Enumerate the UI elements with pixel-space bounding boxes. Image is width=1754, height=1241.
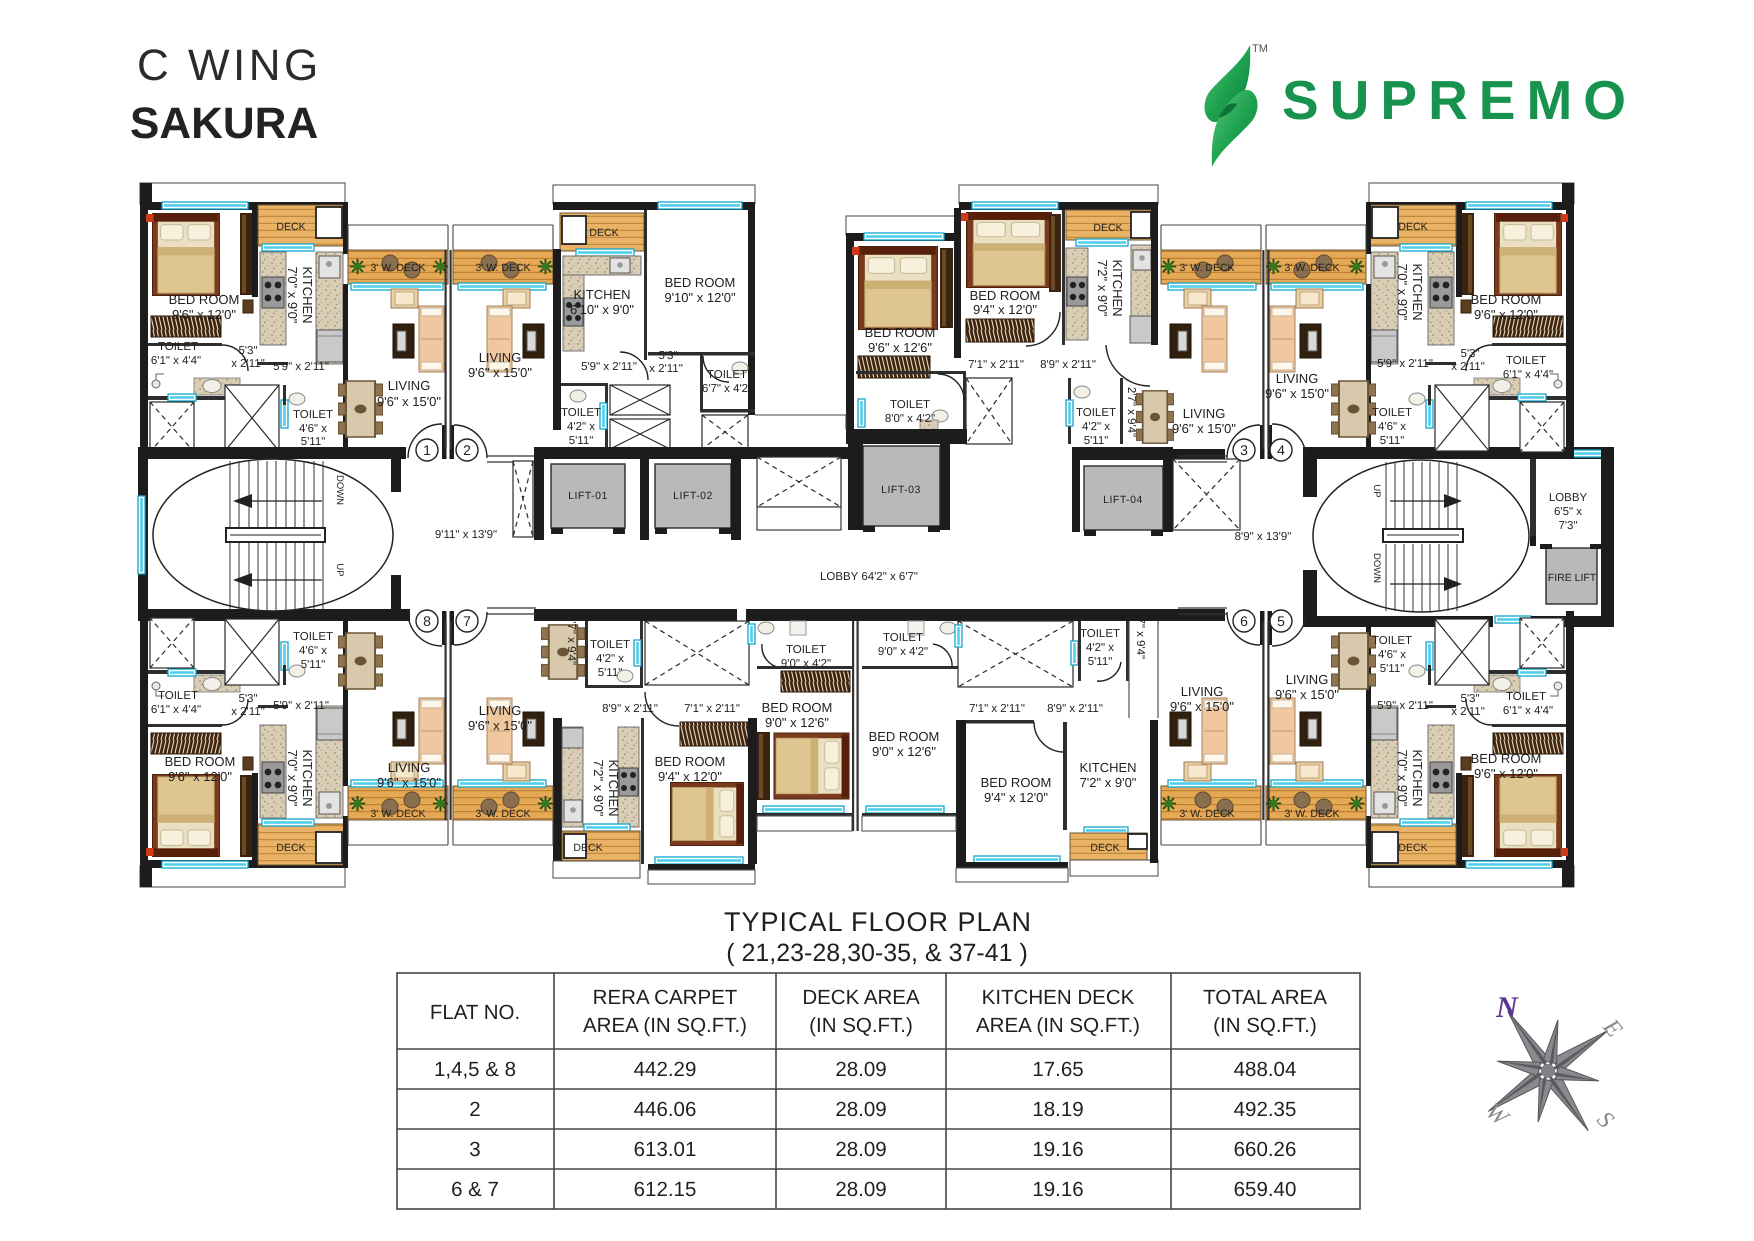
svg-text:RERA CARPET: RERA CARPET <box>593 986 738 1009</box>
svg-text:SUPREMO: SUPREMO <box>1282 69 1637 131</box>
svg-text:LIFT-03: LIFT-03 <box>881 484 921 496</box>
svg-text:5'11": 5'11" <box>301 659 326 671</box>
svg-text:9'6" x 15'0": 9'6" x 15'0" <box>1265 386 1329 401</box>
svg-text:9'6" x 15'0": 9'6" x 15'0" <box>468 365 532 380</box>
svg-text:4'6" x: 4'6" x <box>1378 421 1406 433</box>
svg-text:7'2" x 9'0": 7'2" x 9'0" <box>1095 260 1110 317</box>
svg-text:BED ROOM: BED ROOM <box>165 754 236 769</box>
svg-text:DECK: DECK <box>276 842 305 854</box>
svg-text:BED ROOM: BED ROOM <box>762 700 833 715</box>
svg-text:5'3": 5'3" <box>238 693 257 705</box>
svg-text:7'0" x 9'0": 7'0" x 9'0" <box>285 267 300 324</box>
svg-text:5'11": 5'11" <box>1380 435 1405 447</box>
svg-text:TOILET: TOILET <box>1506 691 1546 703</box>
svg-text:TOILET: TOILET <box>293 631 333 643</box>
svg-text:x 2'11": x 2'11" <box>1451 361 1485 373</box>
svg-text:8'9" x 2'11": 8'9" x 2'11" <box>602 703 658 715</box>
svg-text:2'7" x 9'4": 2'7" x 9'4" <box>1134 609 1146 659</box>
svg-text:DECK: DECK <box>1090 842 1119 854</box>
svg-text:UP: UP <box>1371 484 1382 497</box>
svg-text:442.29: 442.29 <box>634 1058 697 1081</box>
svg-text:x 2'11": x 2'11" <box>231 358 265 370</box>
svg-text:6'10" x 9'0": 6'10" x 9'0" <box>570 302 634 317</box>
svg-text:5'11": 5'11" <box>301 436 326 448</box>
svg-text:28.09: 28.09 <box>835 1138 886 1161</box>
svg-text:660.26: 660.26 <box>1234 1138 1297 1161</box>
svg-text:28.09: 28.09 <box>835 1098 886 1121</box>
svg-text:5'9" x 2'11": 5'9" x 2'11" <box>1377 358 1433 370</box>
svg-text:TOILET: TOILET <box>1506 355 1546 367</box>
svg-text:TOILET: TOILET <box>890 399 930 411</box>
svg-text:9'4" x 12'0": 9'4" x 12'0" <box>984 790 1048 805</box>
svg-text:LIVING: LIVING <box>479 703 522 718</box>
svg-text:DECK: DECK <box>1093 222 1122 234</box>
svg-text:BED ROOM: BED ROOM <box>665 275 736 290</box>
svg-text:KITCHEN: KITCHEN <box>1110 259 1125 316</box>
svg-text:LIFT-04: LIFT-04 <box>1103 494 1143 506</box>
svg-text:(IN SQ.FT.): (IN SQ.FT.) <box>809 1014 913 1037</box>
svg-text:C WING: C WING <box>137 41 322 90</box>
svg-text:DECK: DECK <box>589 227 618 239</box>
svg-text:FLAT NO.: FLAT NO. <box>430 1001 520 1024</box>
svg-text:9'6" x 15'0": 9'6" x 15'0" <box>377 775 441 790</box>
svg-text:TOILET: TOILET <box>1372 635 1412 647</box>
svg-text:7: 7 <box>463 613 471 629</box>
svg-text:TM: TM <box>1252 43 1268 55</box>
svg-text:LIVING: LIVING <box>388 760 431 775</box>
svg-text:6 & 7: 6 & 7 <box>451 1178 499 1201</box>
svg-text:5'9" x 2'11": 5'9" x 2'11" <box>273 700 329 712</box>
svg-text:9'0" x 4'2": 9'0" x 4'2" <box>878 646 928 658</box>
svg-text:7'0" x 9'0": 7'0" x 9'0" <box>285 750 300 807</box>
svg-text:5'11": 5'11" <box>1084 435 1109 447</box>
svg-text:7'0" x 9'0": 7'0" x 9'0" <box>1395 264 1410 321</box>
svg-text:x 2'11": x 2'11" <box>649 363 683 375</box>
svg-text:28.09: 28.09 <box>835 1058 886 1081</box>
svg-text:TYPICAL FLOOR PLAN: TYPICAL FLOOR PLAN <box>724 907 1032 937</box>
svg-text:TOILET: TOILET <box>883 632 923 644</box>
svg-text:5'11": 5'11" <box>569 435 594 447</box>
svg-text:3' W. DECK: 3' W. DECK <box>1179 808 1234 820</box>
svg-text:4'6" x: 4'6" x <box>1378 649 1406 661</box>
svg-text:LIVING: LIVING <box>1276 371 1319 386</box>
svg-text:488.04: 488.04 <box>1234 1058 1297 1081</box>
svg-text:LIVING: LIVING <box>388 378 431 393</box>
svg-text:9'6" x 15'0": 9'6" x 15'0" <box>1275 687 1339 702</box>
svg-text:TOILET: TOILET <box>1080 628 1120 640</box>
svg-text:(IN SQ.FT.): (IN SQ.FT.) <box>1213 1014 1317 1037</box>
svg-text:9'0" x 12'6": 9'0" x 12'6" <box>765 715 829 730</box>
svg-text:BED ROOM: BED ROOM <box>865 325 936 340</box>
svg-text:UP: UP <box>334 563 345 576</box>
svg-text:1: 1 <box>423 442 431 458</box>
svg-text:LIFT-01: LIFT-01 <box>568 490 608 502</box>
svg-text:3' W. DECK: 3' W. DECK <box>1284 262 1339 274</box>
svg-text:TOTAL AREA: TOTAL AREA <box>1203 986 1327 1009</box>
svg-text:5'9" x 2'11": 5'9" x 2'11" <box>273 361 329 373</box>
svg-text:8: 8 <box>423 613 431 629</box>
svg-text:BED ROOM: BED ROOM <box>981 775 1052 790</box>
svg-text:LOBBY: LOBBY <box>1549 492 1588 504</box>
svg-text:7'1" x 2'11": 7'1" x 2'11" <box>968 359 1024 371</box>
svg-text:9'6" x 12'6": 9'6" x 12'6" <box>868 340 932 355</box>
svg-text:7'2" x 9'0": 7'2" x 9'0" <box>1080 775 1137 790</box>
svg-text:9'0" x 12'6": 9'0" x 12'6" <box>872 744 936 759</box>
svg-text:19.16: 19.16 <box>1032 1178 1083 1201</box>
svg-text:KITCHEN DECK: KITCHEN DECK <box>982 986 1135 1009</box>
svg-text:3' W. DECK: 3' W. DECK <box>475 808 530 820</box>
svg-text:18.19: 18.19 <box>1032 1098 1083 1121</box>
svg-text:3' W. DECK: 3' W. DECK <box>475 262 530 274</box>
svg-text:7'3": 7'3" <box>1558 520 1577 532</box>
svg-text:3: 3 <box>469 1138 480 1161</box>
svg-text:9'6" x 12'0": 9'6" x 12'0" <box>172 307 236 322</box>
svg-text:KITCHEN: KITCHEN <box>573 287 630 302</box>
svg-text:5'9" x 2'11": 5'9" x 2'11" <box>1377 700 1433 712</box>
svg-text:9'6" x 15'0": 9'6" x 15'0" <box>1172 421 1236 436</box>
svg-text:x 2'11": x 2'11" <box>231 706 265 718</box>
svg-text:LIVING: LIVING <box>1286 672 1329 687</box>
svg-text:TOILET: TOILET <box>707 369 747 381</box>
svg-text:9'6" x 15'0": 9'6" x 15'0" <box>468 718 532 733</box>
svg-text:2'7" x 9'4": 2'7" x 9'4" <box>1125 387 1137 437</box>
svg-text:6'5" x: 6'5" x <box>1554 506 1582 518</box>
svg-text:N: N <box>1495 991 1519 1024</box>
svg-text:7'1" x 2'11": 7'1" x 2'11" <box>969 703 1025 715</box>
svg-text:2'7" x 9'4": 2'7" x 9'4" <box>565 615 577 665</box>
svg-text:x 2'11": x 2'11" <box>1451 706 1485 718</box>
svg-text:4'2" x: 4'2" x <box>596 653 624 665</box>
svg-text:KITCHEN: KITCHEN <box>1079 760 1136 775</box>
svg-text:LIVING: LIVING <box>1183 406 1226 421</box>
svg-text:TOILET: TOILET <box>1076 407 1116 419</box>
svg-text:DECK: DECK <box>1398 221 1427 233</box>
svg-text:5'3": 5'3" <box>1460 693 1479 705</box>
svg-text:KITCHEN: KITCHEN <box>606 759 621 816</box>
svg-text:TOILET: TOILET <box>158 341 198 353</box>
svg-text:9'6" x 12'0": 9'6" x 12'0" <box>1474 307 1538 322</box>
svg-text:4'6" x: 4'6" x <box>299 423 327 435</box>
svg-text:9'6" x 15'0": 9'6" x 15'0" <box>1170 699 1234 714</box>
svg-text:TOILET: TOILET <box>158 690 198 702</box>
svg-text:9'4" x 12'0": 9'4" x 12'0" <box>973 302 1037 317</box>
svg-text:659.40: 659.40 <box>1234 1178 1297 1201</box>
svg-text:FIRE LIFT: FIRE LIFT <box>1548 572 1597 584</box>
svg-text:BED ROOM: BED ROOM <box>1471 292 1542 307</box>
svg-text:2: 2 <box>469 1098 480 1121</box>
svg-text:DECK AREA: DECK AREA <box>802 986 920 1009</box>
svg-text:28.09: 28.09 <box>835 1178 886 1201</box>
svg-text:5'3": 5'3" <box>1460 348 1479 360</box>
svg-text:8'9" x 2'11": 8'9" x 2'11" <box>1047 703 1103 715</box>
svg-text:8'0" x 4'2": 8'0" x 4'2" <box>885 413 935 425</box>
svg-text:BED ROOM: BED ROOM <box>869 729 940 744</box>
svg-text:19.16: 19.16 <box>1032 1138 1083 1161</box>
svg-text:BED ROOM: BED ROOM <box>1471 751 1542 766</box>
svg-text:5'11": 5'11" <box>598 667 623 679</box>
svg-text:DECK: DECK <box>276 221 305 233</box>
svg-text:5'3": 5'3" <box>238 345 257 357</box>
svg-text:5'9" x 2'11": 5'9" x 2'11" <box>581 361 637 373</box>
svg-text:17.65: 17.65 <box>1032 1058 1083 1081</box>
svg-text:1,4,5 & 8: 1,4,5 & 8 <box>434 1058 516 1081</box>
svg-text:AREA (IN SQ.FT.): AREA (IN SQ.FT.) <box>583 1014 747 1037</box>
svg-text:6'1" x 4'4": 6'1" x 4'4" <box>1503 705 1553 717</box>
svg-text:8'9" x 13'9": 8'9" x 13'9" <box>1235 531 1292 543</box>
svg-text:6: 6 <box>1240 613 1248 629</box>
svg-text:BED ROOM: BED ROOM <box>970 288 1041 303</box>
svg-text:LIVING: LIVING <box>1181 684 1224 699</box>
svg-text:KITCHEN: KITCHEN <box>1410 263 1425 320</box>
svg-text:3: 3 <box>1240 442 1248 458</box>
svg-text:TOILET: TOILET <box>293 409 333 421</box>
svg-text:4'2" x: 4'2" x <box>1086 642 1114 654</box>
svg-text:5'3": 5'3" <box>658 350 677 362</box>
svg-text:4: 4 <box>1277 442 1285 458</box>
svg-text:DECK: DECK <box>1398 842 1427 854</box>
svg-text:6'1" x 4'4": 6'1" x 4'4" <box>151 355 201 367</box>
svg-text:446.06: 446.06 <box>634 1098 697 1121</box>
svg-text:BED ROOM: BED ROOM <box>169 292 240 307</box>
svg-text:KITCHEN: KITCHEN <box>1410 749 1425 806</box>
svg-text:LOBBY 64'2" x 6'7": LOBBY 64'2" x 6'7" <box>820 571 918 583</box>
svg-text:LIVING: LIVING <box>479 350 522 365</box>
svg-text:AREA (IN SQ.FT.): AREA (IN SQ.FT.) <box>976 1014 1140 1037</box>
svg-text:9'4" x 12'0": 9'4" x 12'0" <box>658 769 722 784</box>
svg-text:3' W. DECK: 3' W. DECK <box>1284 808 1339 820</box>
svg-text:613.01: 613.01 <box>634 1138 697 1161</box>
svg-text:TOILET: TOILET <box>561 407 601 419</box>
svg-text:7'1" x 2'11": 7'1" x 2'11" <box>684 703 740 715</box>
svg-text:9'0" x 4'2": 9'0" x 4'2" <box>781 658 831 670</box>
svg-text:KITCHEN: KITCHEN <box>300 266 315 323</box>
svg-text:3' W. DECK: 3' W. DECK <box>370 808 425 820</box>
svg-text:9'11" x 13'9": 9'11" x 13'9" <box>435 529 497 541</box>
svg-text:TOILET: TOILET <box>786 644 826 656</box>
svg-text:7'2" x 9'0": 7'2" x 9'0" <box>591 760 606 817</box>
svg-text:5'11": 5'11" <box>1088 656 1113 668</box>
svg-text:BED ROOM: BED ROOM <box>655 754 726 769</box>
svg-text:492.35: 492.35 <box>1234 1098 1297 1121</box>
svg-text:6'1" x 4'4": 6'1" x 4'4" <box>1503 369 1553 381</box>
svg-text:9'6" x 15'0": 9'6" x 15'0" <box>377 394 441 409</box>
svg-text:DECK: DECK <box>573 842 602 854</box>
svg-text:3' W. DECK: 3' W. DECK <box>370 262 425 274</box>
svg-text:DOWN: DOWN <box>334 475 345 505</box>
svg-text:KITCHEN: KITCHEN <box>300 749 315 806</box>
svg-text:8'9" x 2'11": 8'9" x 2'11" <box>1040 359 1096 371</box>
svg-text:6'1" x 4'4": 6'1" x 4'4" <box>151 704 201 716</box>
svg-text:LIFT-02: LIFT-02 <box>673 490 713 502</box>
svg-text:612.15: 612.15 <box>634 1178 697 1201</box>
svg-text:9'6" x 12'0": 9'6" x 12'0" <box>168 769 232 784</box>
svg-text:4'2" x: 4'2" x <box>567 421 595 433</box>
svg-text:5: 5 <box>1277 613 1285 629</box>
svg-text:TOILET: TOILET <box>1372 407 1412 419</box>
svg-text:9'10" x 12'0": 9'10" x 12'0" <box>664 290 736 305</box>
svg-text:4'2" x: 4'2" x <box>1082 421 1110 433</box>
svg-text:4'6" x: 4'6" x <box>299 645 327 657</box>
svg-text:( 21,23-28,30-35, & 37-41 ): ( 21,23-28,30-35, & 37-41 ) <box>726 939 1028 967</box>
svg-text:DOWN: DOWN <box>1371 553 1382 583</box>
svg-text:2: 2 <box>463 442 471 458</box>
svg-text:3' W. DECK: 3' W. DECK <box>1179 262 1234 274</box>
svg-text:7'0" x 9'0": 7'0" x 9'0" <box>1395 750 1410 807</box>
svg-text:TOILET: TOILET <box>590 639 630 651</box>
svg-text:5'11": 5'11" <box>1380 663 1405 675</box>
svg-text:SAKURA: SAKURA <box>130 99 318 148</box>
svg-text:6'7" x 4'2": 6'7" x 4'2" <box>702 383 752 395</box>
svg-text:9'6" x 12'0": 9'6" x 12'0" <box>1474 766 1538 781</box>
